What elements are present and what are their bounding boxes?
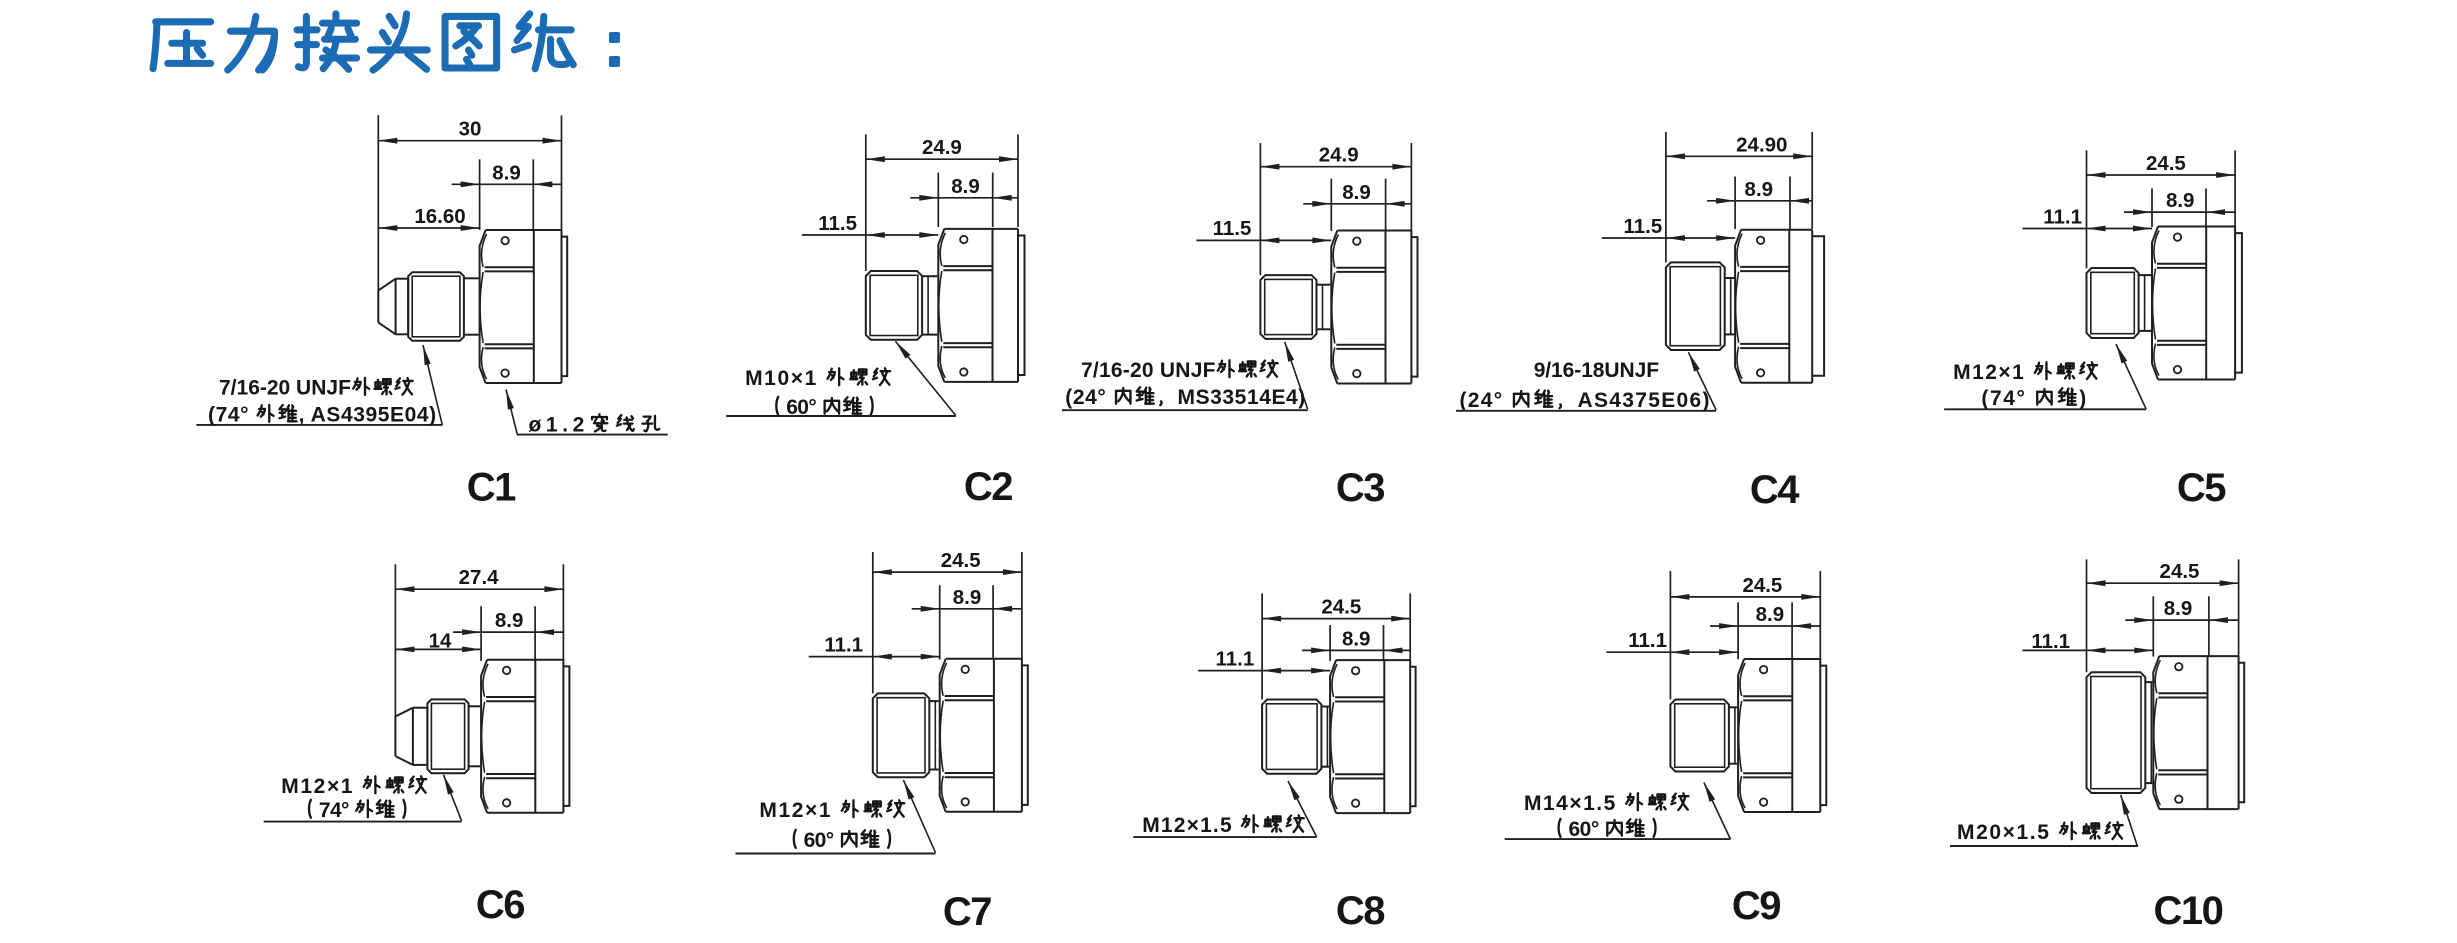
svg-text:11.5: 11.5	[818, 212, 857, 235]
svg-text:11.1: 11.1	[2043, 205, 2082, 228]
svg-text:): )	[2079, 387, 2088, 410]
svg-text:M14×1.5: M14×1.5	[1524, 792, 1617, 815]
svg-text:M12×1.5: M12×1.5	[1142, 814, 1233, 837]
svg-text:M12×1: M12×1	[1953, 361, 2025, 384]
svg-text:(74°: (74°	[1981, 387, 2026, 410]
svg-text:24.5: 24.5	[1742, 574, 1782, 597]
svg-text:C5: C5	[2177, 466, 2226, 510]
svg-text:C4: C4	[1750, 468, 1800, 512]
svg-text:8.9: 8.9	[492, 161, 521, 184]
svg-text:MS33514E4): MS33514E4)	[1178, 386, 1306, 409]
svg-text:C2: C2	[964, 465, 1012, 509]
svg-text:14: 14	[429, 630, 452, 653]
svg-text:C9: C9	[1732, 884, 1780, 928]
svg-text:8.9: 8.9	[1756, 603, 1785, 626]
svg-text:7/16-20 UNJF: 7/16-20 UNJF	[219, 377, 351, 400]
svg-text:(74°: (74°	[208, 404, 249, 427]
svg-text:C6: C6	[476, 883, 524, 927]
svg-text:C10: C10	[2154, 889, 2223, 933]
svg-text:24.5: 24.5	[2160, 560, 2200, 583]
svg-text:24.90: 24.90	[1736, 133, 1787, 156]
svg-text:AS4375E06): AS4375E06)	[1578, 389, 1711, 412]
svg-text:C1: C1	[467, 465, 516, 509]
svg-text:11.1: 11.1	[824, 633, 863, 656]
svg-text:24.9: 24.9	[922, 136, 962, 159]
svg-text:8.9: 8.9	[495, 609, 524, 632]
svg-text:30: 30	[459, 118, 482, 141]
svg-text:24.5: 24.5	[1321, 596, 1361, 619]
svg-text:8.9: 8.9	[2164, 597, 2193, 620]
svg-text:11.1: 11.1	[1216, 647, 1255, 670]
svg-text:8.9: 8.9	[951, 175, 980, 198]
svg-text:C8: C8	[1336, 889, 1385, 933]
svg-text:(24°: (24°	[1065, 386, 1106, 409]
svg-text:11.5: 11.5	[1624, 215, 1663, 238]
svg-text:C7: C7	[943, 890, 991, 934]
svg-text:8.9: 8.9	[1342, 627, 1371, 650]
svg-text:60°: 60°	[1569, 818, 1599, 841]
svg-text:8.9: 8.9	[1745, 178, 1774, 201]
svg-text:ø1.2: ø1.2	[529, 413, 589, 436]
svg-text:24.5: 24.5	[2146, 152, 2186, 175]
svg-text:16.60: 16.60	[414, 205, 465, 228]
svg-text:74°: 74°	[319, 799, 349, 822]
svg-text:60°: 60°	[804, 829, 834, 852]
svg-text:7/16-20 UNJF: 7/16-20 UNJF	[1081, 359, 1216, 382]
svg-text:11.1: 11.1	[1628, 629, 1667, 652]
svg-text:11.1: 11.1	[2031, 630, 2070, 653]
svg-text:27.4: 27.4	[459, 566, 499, 589]
svg-text:24.9: 24.9	[1319, 144, 1359, 167]
svg-text:11.5: 11.5	[1213, 217, 1252, 240]
svg-text:(24°: (24°	[1460, 389, 1504, 412]
svg-text:9/16-18UNJF: 9/16-18UNJF	[1534, 359, 1660, 382]
svg-text:, AS4395E04): , AS4395E04)	[299, 404, 437, 427]
svg-text:M12×1: M12×1	[281, 775, 354, 798]
svg-text:8.9: 8.9	[1342, 181, 1371, 204]
svg-text:M10×1: M10×1	[745, 367, 818, 390]
svg-text:24.5: 24.5	[941, 549, 981, 572]
svg-text:M20×1.5: M20×1.5	[1957, 821, 2051, 844]
svg-text:M12×1: M12×1	[759, 799, 832, 822]
svg-text:8.9: 8.9	[2166, 189, 2195, 212]
svg-text:C3: C3	[1336, 466, 1384, 510]
svg-text:8.9: 8.9	[953, 586, 982, 609]
